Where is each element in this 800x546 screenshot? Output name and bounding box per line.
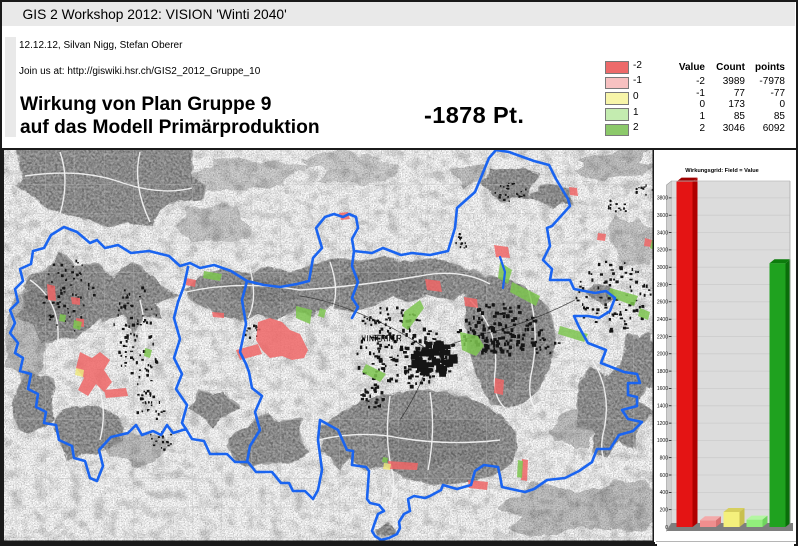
svg-text:1400: 1400 (657, 404, 668, 410)
svg-text:1000: 1000 (657, 438, 668, 444)
svg-text:1800: 1800 (657, 369, 668, 375)
svg-text:2200: 2200 (657, 334, 668, 340)
svg-text:3800: 3800 (657, 196, 668, 202)
svg-text:600: 600 (660, 473, 669, 479)
svg-text:3400: 3400 (657, 230, 668, 236)
svg-text:3000: 3000 (657, 265, 668, 271)
svg-text:400: 400 (660, 490, 669, 496)
svg-text:3200: 3200 (657, 248, 668, 254)
svg-text:2000: 2000 (657, 352, 668, 358)
svg-text:Wirkungsgrid: Field = Value: Wirkungsgrid: Field = Value (685, 168, 758, 174)
svg-text:3600: 3600 (657, 213, 668, 219)
svg-text:2800: 2800 (657, 282, 668, 288)
svg-text:800: 800 (660, 456, 669, 462)
svg-text:1600: 1600 (657, 386, 668, 392)
svg-text:200: 200 (660, 508, 669, 514)
svg-text:2600: 2600 (657, 300, 668, 306)
svg-text:2400: 2400 (657, 317, 668, 323)
svg-text:1200: 1200 (657, 421, 668, 427)
